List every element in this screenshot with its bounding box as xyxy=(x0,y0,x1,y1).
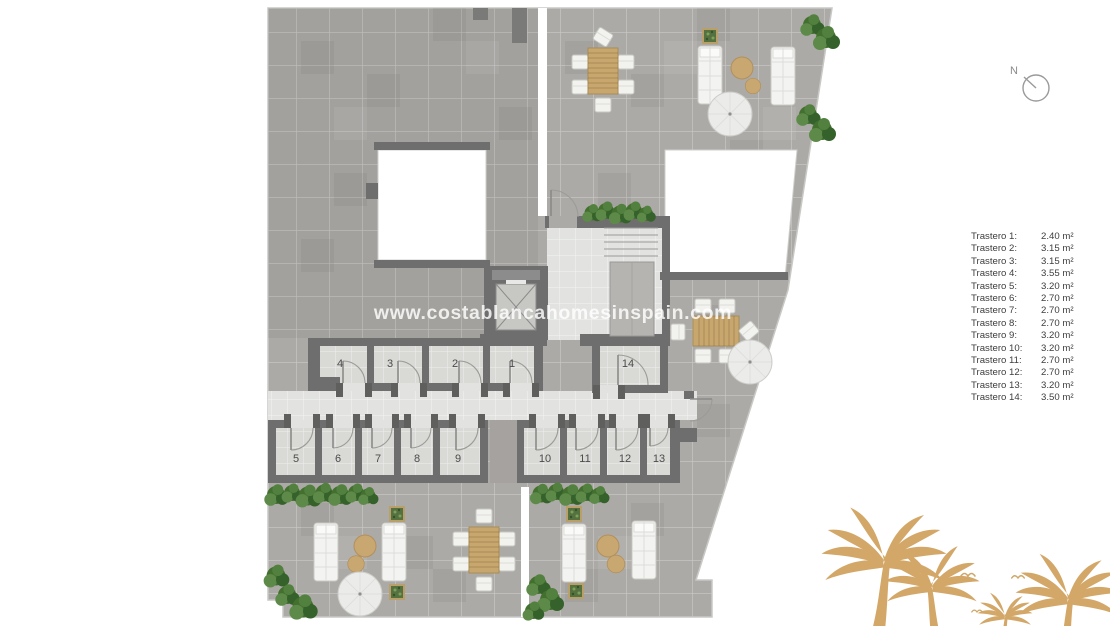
legend-room-name: Trastero 4: xyxy=(971,268,1041,280)
north-label: N xyxy=(1010,65,1018,77)
storage-legend: Trastero 1:2.40 m² Trastero 2:3.15 m² Tr… xyxy=(971,231,1093,405)
legend-row: Trastero 5:3.20 m² xyxy=(971,281,1093,293)
legend-row: Trastero 6:2.70 m² xyxy=(971,293,1093,305)
legend-room-name: Trastero 3: xyxy=(971,256,1041,268)
room-number-label: 5 xyxy=(293,453,299,465)
floorplan-page: 1 2 3 4 5 6 7 8 9 10 11 12 13 14 xyxy=(0,0,1110,626)
palm-trees-decoration xyxy=(822,508,1110,626)
room-number-label: 2 xyxy=(452,358,458,370)
legend-row: Trastero 12:2.70 m² xyxy=(971,367,1093,379)
legend-room-name: Trastero 6: xyxy=(971,293,1041,305)
room-number-label: 6 xyxy=(335,453,341,465)
room-number-label: 9 xyxy=(455,453,461,465)
legend-row: Trastero 8:2.70 m² xyxy=(971,318,1093,330)
room-number-label: 13 xyxy=(653,453,665,465)
legend-row: Trastero 4:3.55 m² xyxy=(971,268,1093,280)
legend-room-area: 2.70 m² xyxy=(1041,367,1093,379)
legend-row: Trastero 14:3.50 m² xyxy=(971,392,1093,404)
legend-room-name: Trastero 12: xyxy=(971,367,1041,379)
legend-row: Trastero 2:3.15 m² xyxy=(971,243,1093,255)
legend-room-area: 3.20 m² xyxy=(1041,281,1093,293)
legend-room-name: Trastero 1: xyxy=(971,231,1041,243)
legend-room-area: 3.15 m² xyxy=(1041,256,1093,268)
legend-room-area: 2.70 m² xyxy=(1041,355,1093,367)
legend-row: Trastero 3:3.15 m² xyxy=(971,256,1093,268)
legend-room-area: 2.70 m² xyxy=(1041,305,1093,317)
legend-row: Trastero 7:2.70 m² xyxy=(971,305,1093,317)
room-number-label: 1 xyxy=(509,358,515,370)
north-compass-icon: N xyxy=(1010,65,1049,101)
legend-room-area: 3.20 m² xyxy=(1041,380,1093,392)
room-number-label: 12 xyxy=(619,453,631,465)
legend-room-area: 3.15 m² xyxy=(1041,243,1093,255)
watermark-text: www.costablancahomesinspain.com xyxy=(373,302,732,324)
legend-room-name: Trastero 9: xyxy=(971,330,1041,342)
legend-room-name: Trastero 7: xyxy=(971,305,1041,317)
room-number-label: 14 xyxy=(622,358,634,370)
legend-room-name: Trastero 10: xyxy=(971,343,1041,355)
legend-room-area: 3.20 m² xyxy=(1041,330,1093,342)
legend-room-name: Trastero 11: xyxy=(971,355,1041,367)
legend-row: Trastero 10:3.20 m² xyxy=(971,343,1093,355)
legend-room-name: Trastero 5: xyxy=(971,281,1041,293)
room-number-label: 10 xyxy=(539,453,551,465)
south-passage xyxy=(490,420,517,483)
legend-room-name: Trastero 14: xyxy=(971,392,1041,404)
legend-row: Trastero 1:2.40 m² xyxy=(971,231,1093,243)
legend-room-name: Trastero 2: xyxy=(971,243,1041,255)
legend-row: Trastero 11:2.70 m² xyxy=(971,355,1093,367)
legend-room-area: 2.40 m² xyxy=(1041,231,1093,243)
legend-room-name: Trastero 13: xyxy=(971,380,1041,392)
legend-row: Trastero 13:3.20 m² xyxy=(971,380,1093,392)
legend-room-area: 2.70 m² xyxy=(1041,293,1093,305)
legend-room-area: 3.20 m² xyxy=(1041,343,1093,355)
room-number-label: 11 xyxy=(579,453,590,465)
legend-room-area: 3.50 m² xyxy=(1041,392,1093,404)
legend-row: Trastero 9:3.20 m² xyxy=(971,330,1093,342)
room-number-label: 3 xyxy=(387,358,393,370)
legend-room-name: Trastero 8: xyxy=(971,318,1041,330)
room-number-label: 7 xyxy=(375,453,381,465)
room-number-label: 4 xyxy=(337,358,343,370)
floorplan-canvas: 1 2 3 4 5 6 7 8 9 10 11 12 13 14 xyxy=(0,0,1110,626)
room-number-label: 8 xyxy=(414,453,420,465)
legend-room-area: 2.70 m² xyxy=(1041,318,1093,330)
legend-room-area: 3.55 m² xyxy=(1041,268,1093,280)
